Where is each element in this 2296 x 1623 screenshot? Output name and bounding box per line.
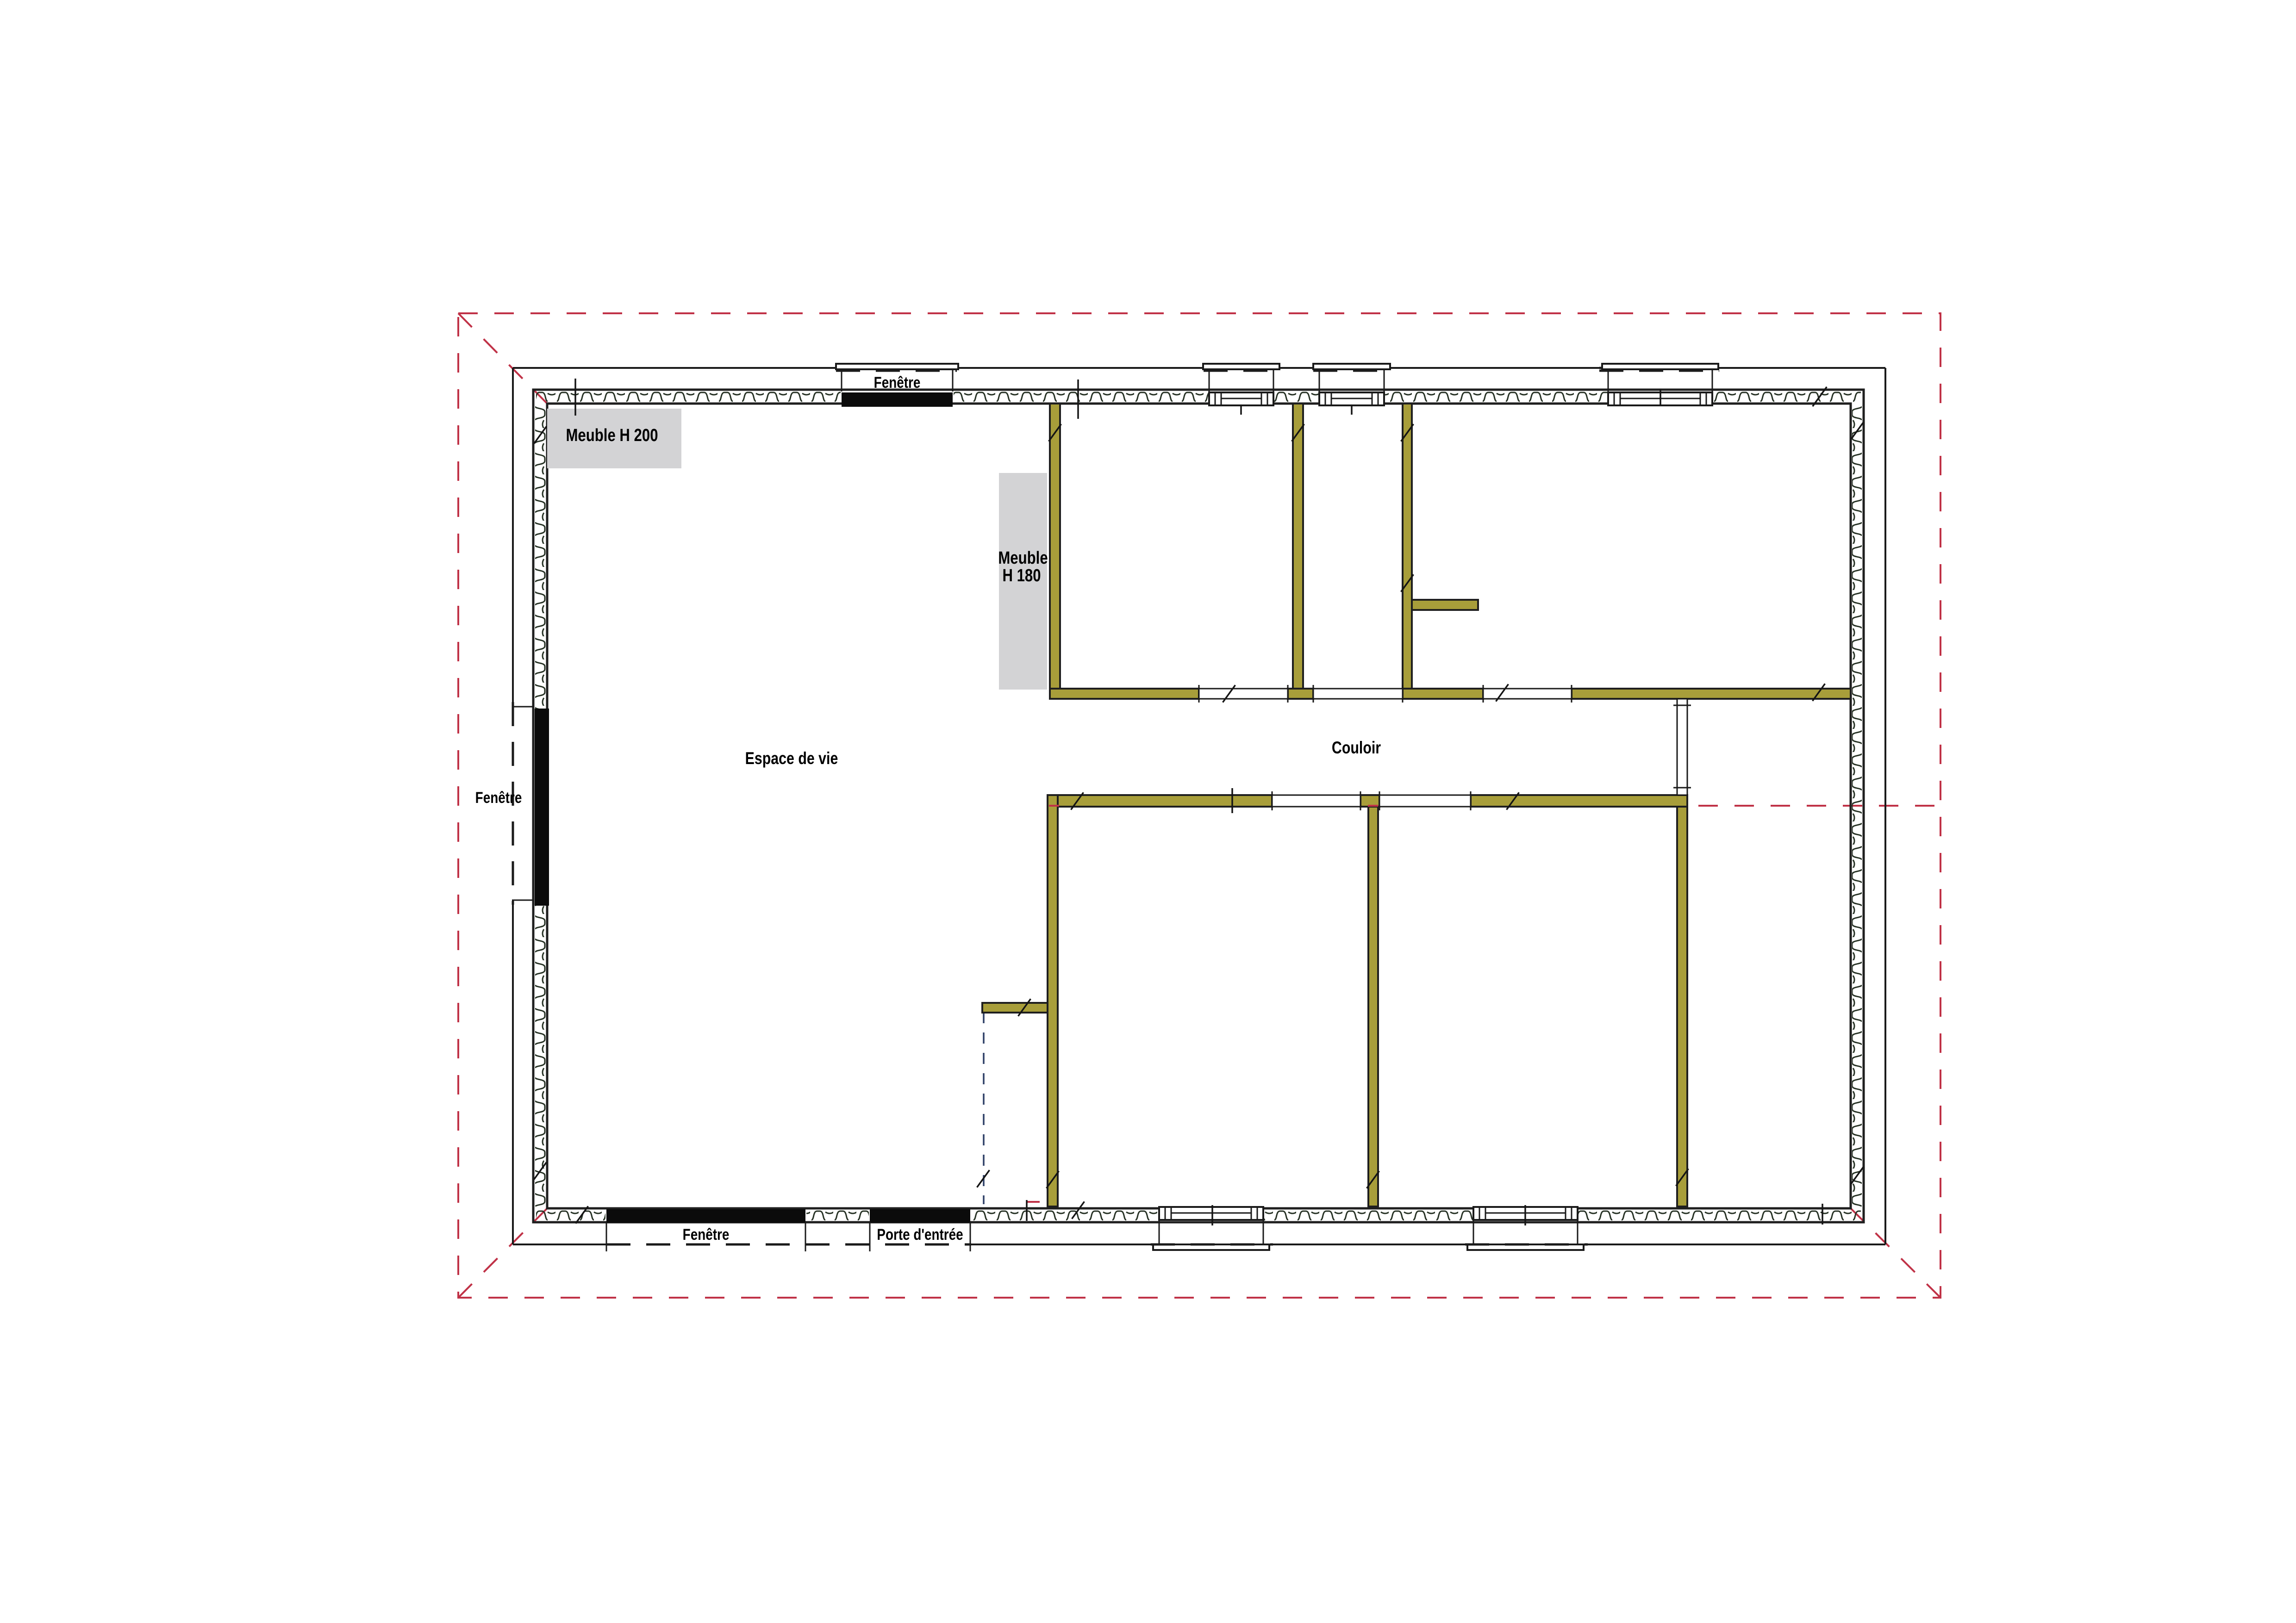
svg-text:Fenêtre: Fenêtre [874,373,921,391]
svg-text:Espace de vie: Espace de vie [745,749,838,768]
svg-text:H 180: H 180 [1002,566,1041,585]
svg-text:Fenêtre: Fenêtre [475,789,522,806]
svg-text:Meuble: Meuble [998,548,1048,568]
svg-text:Meuble H 200: Meuble H 200 [566,426,658,445]
svg-text:Porte d'entrée: Porte d'entrée [877,1225,963,1243]
svg-text:Fenêtre: Fenêtre [683,1225,730,1243]
svg-text:Couloir: Couloir [1332,738,1381,758]
